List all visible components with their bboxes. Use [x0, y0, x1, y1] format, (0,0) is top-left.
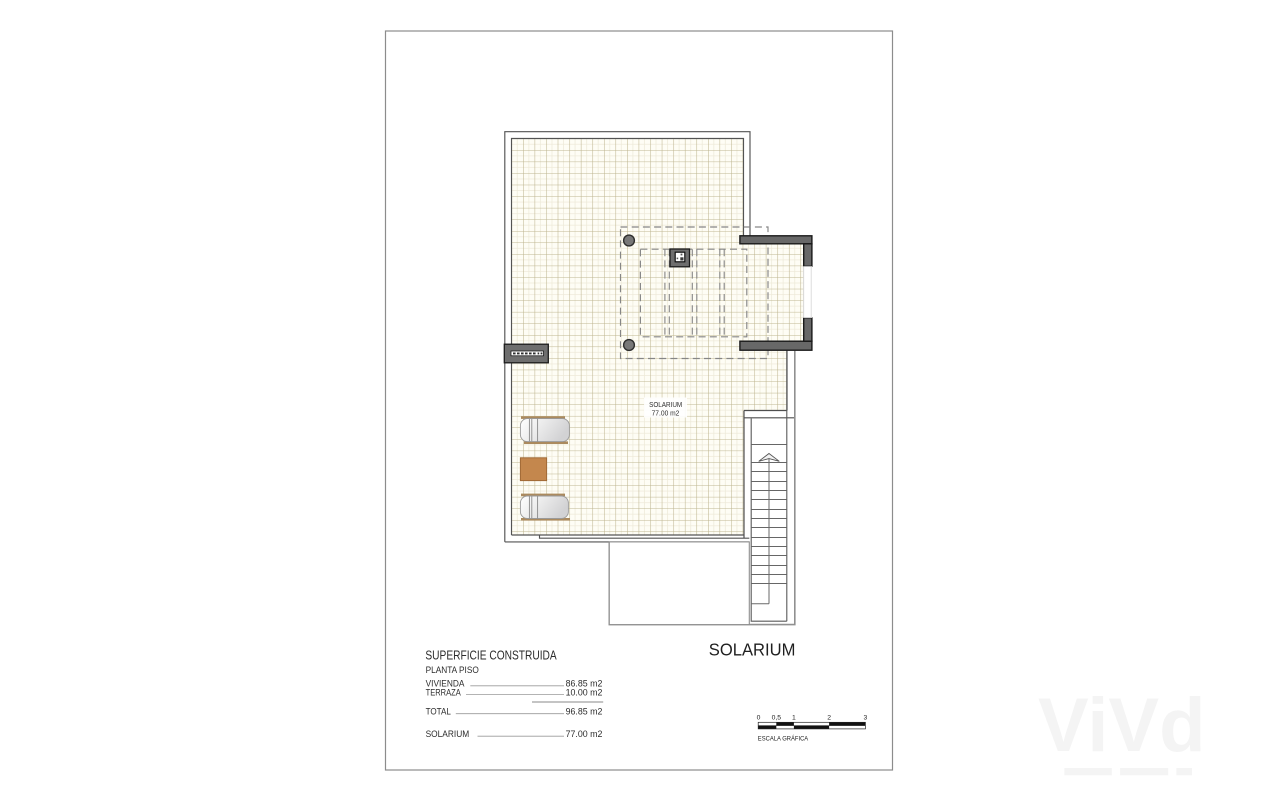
svg-text:ViVd: ViVd [1038, 683, 1206, 768]
svg-text:SOLARIUM: SOLARIUM [426, 729, 470, 739]
svg-text:0: 0 [757, 715, 761, 722]
svg-text:2: 2 [827, 715, 831, 722]
svg-text:SUPERFICIE CONSTRUIDA: SUPERFICIE CONSTRUIDA [425, 647, 556, 662]
svg-text:96.85 m2: 96.85 m2 [566, 707, 603, 717]
svg-text:1: 1 [792, 715, 796, 722]
svg-text:TOTAL: TOTAL [426, 707, 451, 717]
svg-text:ESCALA GRÁFICA: ESCALA GRÁFICA [758, 734, 809, 743]
svg-text:10.00 m2: 10.00 m2 [566, 687, 603, 697]
svg-text:SOLARIUM: SOLARIUM [709, 639, 796, 659]
svg-text:3: 3 [864, 715, 868, 722]
svg-text:PLANTA PISO: PLANTA PISO [426, 665, 479, 675]
svg-text:77.00 m2: 77.00 m2 [566, 729, 603, 739]
svg-text:0,5: 0,5 [772, 715, 782, 722]
svg-text:TERRAZA: TERRAZA [426, 687, 461, 697]
svg-text:77.00 m2: 77.00 m2 [652, 409, 680, 418]
